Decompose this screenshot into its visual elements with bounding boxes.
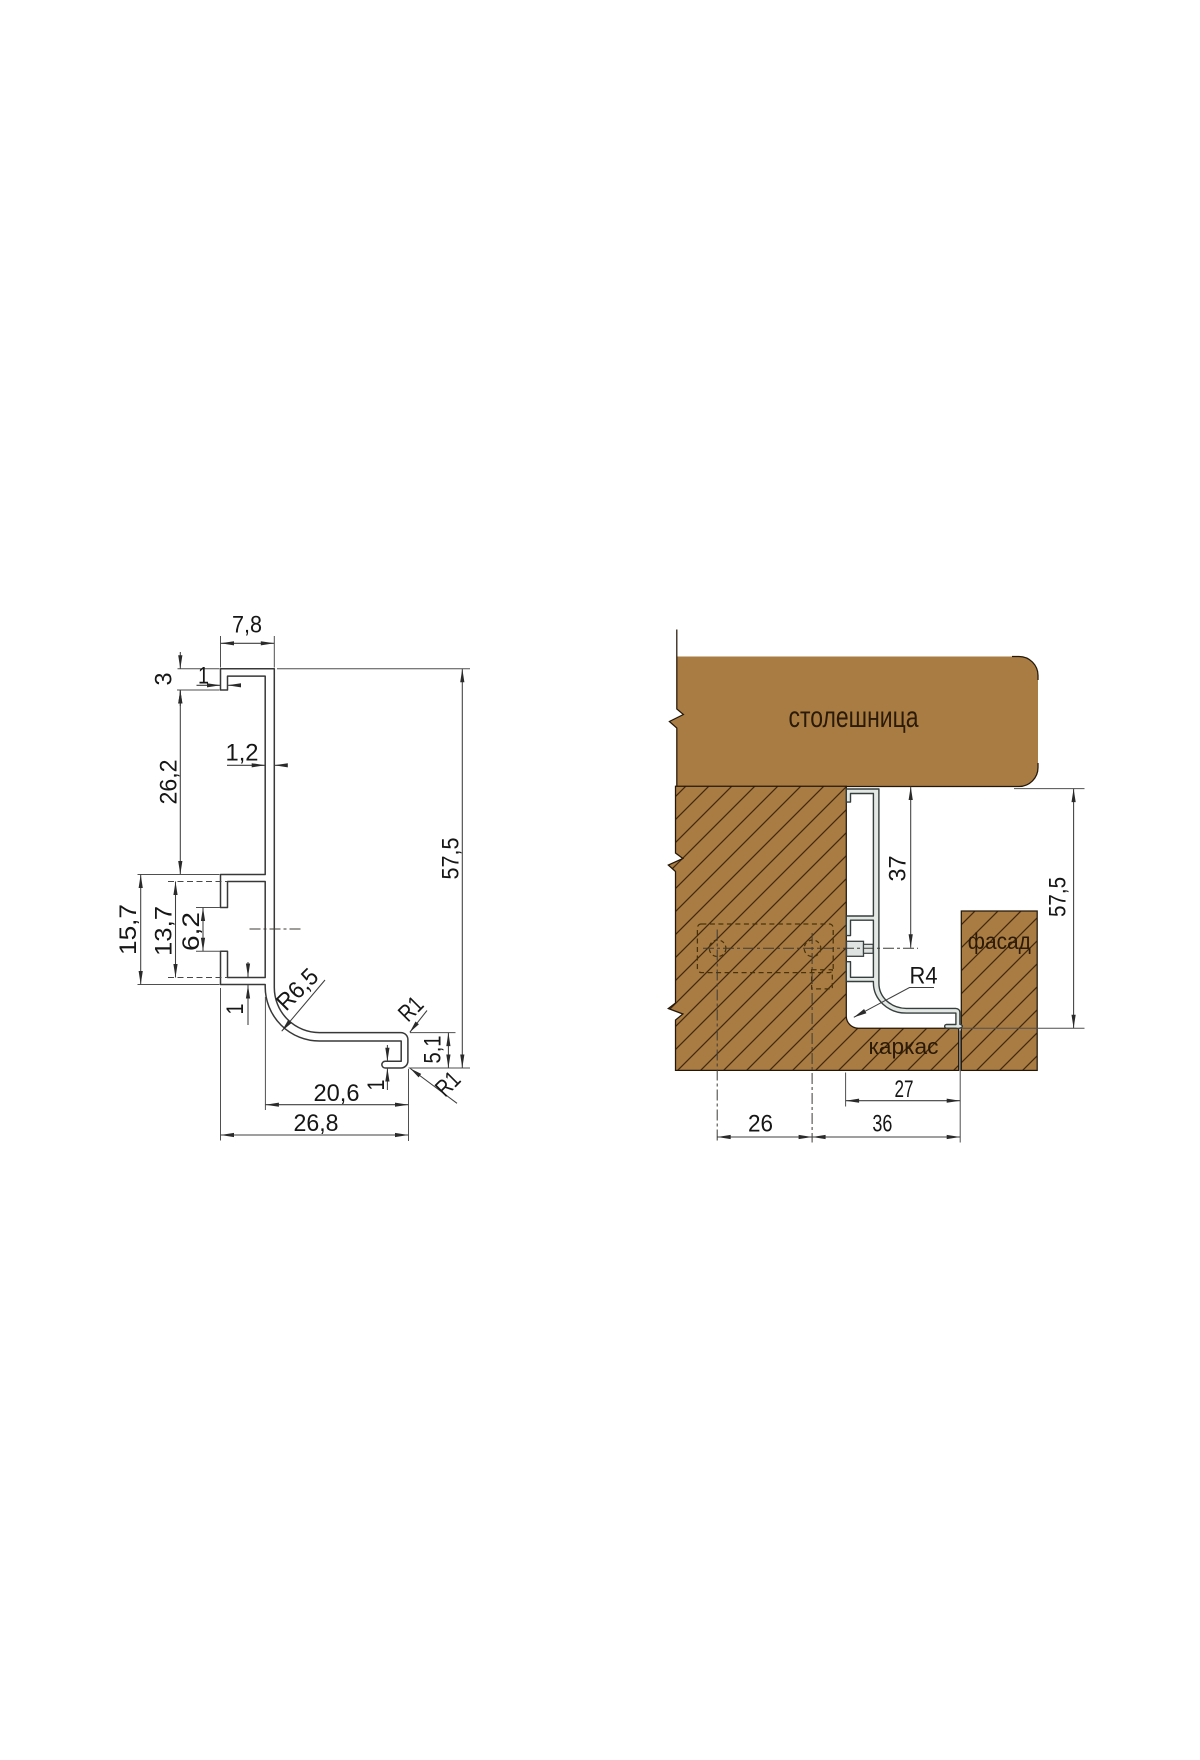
svg-text:57,5: 57,5	[438, 838, 465, 880]
svg-text:1: 1	[222, 1004, 249, 1015]
svg-text:37: 37	[885, 856, 912, 882]
svg-text:57,5: 57,5	[1045, 877, 1072, 917]
svg-text:5,1: 5,1	[420, 1036, 447, 1064]
svg-text:1: 1	[198, 663, 209, 690]
svg-text:20,6: 20,6	[314, 1080, 360, 1107]
svg-text:1,2: 1,2	[226, 740, 259, 767]
svg-text:26: 26	[748, 1111, 773, 1138]
svg-text:R4: R4	[910, 963, 938, 990]
svg-text:6,2: 6,2	[178, 912, 205, 951]
svg-text:13,7: 13,7	[151, 906, 178, 956]
svg-text:столешница: столешница	[789, 701, 919, 734]
svg-text:фасад: фасад	[968, 928, 1031, 954]
svg-text:27: 27	[895, 1076, 914, 1103]
svg-text:3: 3	[151, 673, 178, 686]
svg-text:7,8: 7,8	[232, 612, 262, 639]
svg-text:26,8: 26,8	[294, 1110, 339, 1137]
svg-text:26,2: 26,2	[156, 760, 183, 805]
svg-text:15,7: 15,7	[115, 904, 142, 955]
svg-text:каркас: каркас	[869, 1034, 939, 1059]
svg-text:36: 36	[872, 1111, 892, 1138]
svg-text:1: 1	[363, 1080, 390, 1091]
